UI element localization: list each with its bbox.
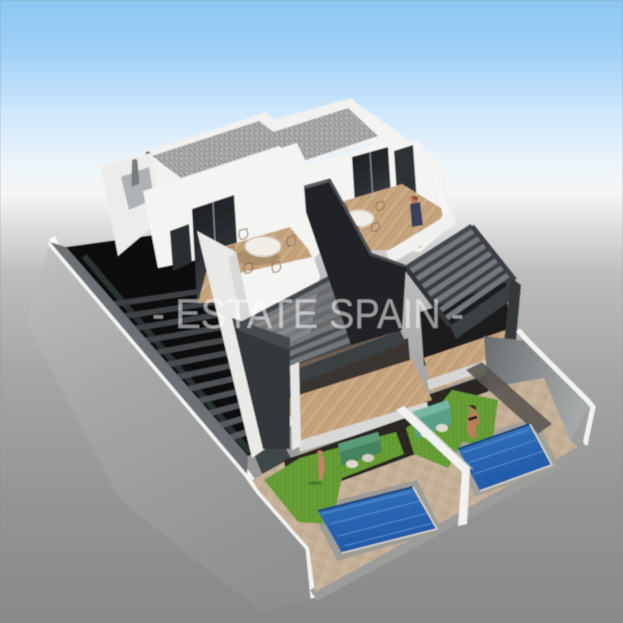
svg-text:- ESTATE SPAIN -: - ESTATE SPAIN - <box>152 290 464 337</box>
